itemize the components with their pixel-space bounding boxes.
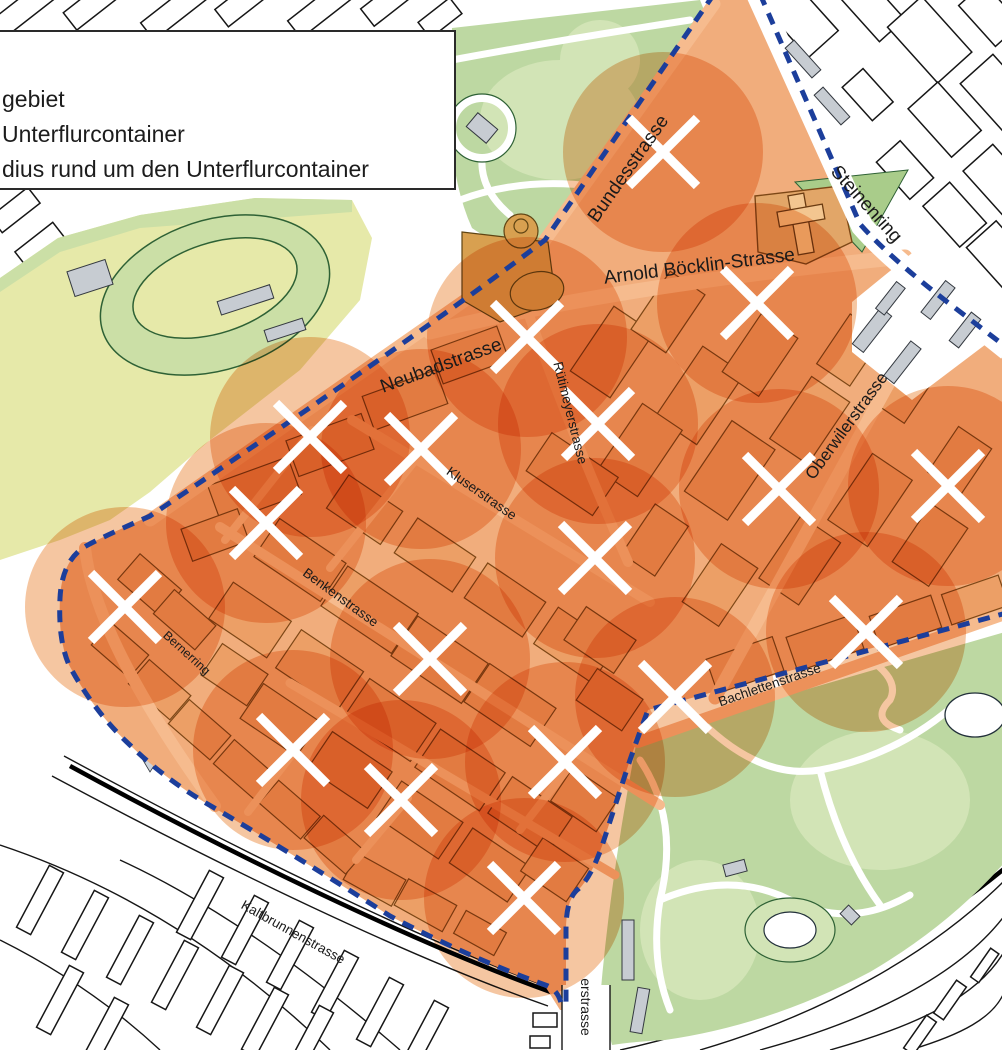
legend-item-container: Unterflurcontainer	[2, 117, 454, 152]
legend-item-pilot-area: gebiet	[2, 82, 454, 117]
legend-item-radius: dius rund um den Unterflurcontainer	[2, 152, 454, 187]
legend-box: gebiet Unterflurcontainer dius rund um d…	[0, 30, 456, 190]
map-page: BundesstrasseSteinenringArnold Böcklin-S…	[0, 0, 1002, 1050]
street-label-erstrasse: erstrasse	[578, 978, 594, 1036]
